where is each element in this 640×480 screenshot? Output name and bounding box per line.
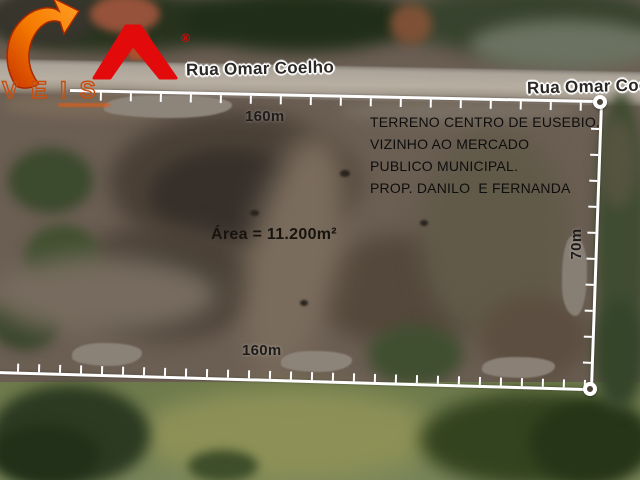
property-description: TERRENO CENTRO DE EUSEBIO. VIZINHO AO ME…	[370, 111, 600, 199]
boundary-tick	[206, 369, 208, 377]
boundary-tick	[374, 374, 376, 382]
boundary-tick	[227, 370, 229, 378]
boundary-tick	[269, 371, 271, 379]
boundary-tick	[353, 373, 355, 381]
terrain-patch	[420, 220, 428, 226]
boundary-tick	[583, 362, 591, 364]
terrain-patch	[300, 300, 308, 306]
boundary-tick	[587, 232, 595, 234]
boundary-tick	[479, 377, 481, 385]
corner-marker-top-right	[593, 95, 607, 109]
terrain-patch	[0, 382, 640, 480]
boundary-tick	[250, 95, 252, 103]
terrain-patch	[140, 390, 440, 480]
boundary-tick	[520, 101, 522, 109]
terrain-patch	[0, 295, 60, 350]
satellite-map-view: Rua Omar Coelho Rua Omar Coe 160m 160m 7…	[0, 0, 640, 480]
description-line: PUBLICO MUNICIPAL.	[370, 155, 600, 177]
terrain-patch	[470, 20, 640, 70]
description-line: TERRENO CENTRO DE EUSEBIO.	[370, 111, 600, 133]
terrain-patch	[0, 425, 100, 480]
terrain-patch	[530, 400, 640, 480]
terrain-patch	[400, 0, 640, 55]
boundary-tick	[370, 98, 372, 106]
dimension-label-top: 160m	[245, 108, 285, 125]
boundary-tick	[17, 364, 19, 372]
agency-logo: ® VEIS	[0, 0, 240, 120]
terrain-patch	[390, 4, 432, 44]
smudge-mark	[281, 351, 352, 372]
terrain-patch	[0, 385, 150, 480]
logo-wordmark: VEIS	[2, 77, 109, 105]
boundary-tick	[38, 364, 40, 372]
terrain-patch	[598, 118, 638, 208]
boundary-tick	[500, 378, 502, 386]
boundary-tick	[311, 372, 313, 380]
dimension-label-bottom: 160m	[242, 342, 282, 359]
boundary-tick	[580, 102, 582, 110]
terrain-patch	[188, 450, 258, 480]
boundary-tick	[430, 99, 432, 107]
boundary-tick	[290, 371, 292, 379]
street-label-right: Rua Omar Coe	[527, 75, 640, 98]
terrain-patch	[596, 92, 640, 392]
boundary-tick	[490, 100, 492, 108]
boundary-tick	[280, 96, 282, 104]
terrain-patch	[25, 225, 100, 290]
boundary-tick	[437, 376, 439, 384]
logo-registered-icon: ®	[181, 31, 190, 45]
boundary-tick	[332, 373, 334, 381]
smudge-mark	[482, 357, 555, 378]
boundary-tick	[585, 310, 593, 312]
terrain-patch	[100, 255, 220, 325]
boundary-tick	[340, 97, 342, 105]
terrain-patch	[340, 170, 350, 177]
logo-subtext-bar	[58, 103, 110, 107]
boundary-tick	[542, 379, 544, 387]
boundary-tick	[122, 367, 124, 375]
corner-marker-bottom-right	[583, 382, 597, 396]
boundary-tick	[460, 100, 462, 108]
boundary-tick	[143, 367, 145, 375]
boundary-tick	[458, 376, 460, 384]
boundary-tick	[416, 375, 418, 383]
boundary-tick	[400, 99, 402, 107]
boundary-tick	[563, 379, 565, 387]
boundary-tick	[80, 365, 82, 373]
terrain-patch	[310, 235, 500, 345]
description-line: PROP. DANILO E FERNANDA	[370, 177, 600, 199]
terrain-patch	[594, 300, 640, 410]
terrain-patch	[8, 148, 93, 213]
boundary-tick	[164, 368, 166, 376]
terrain-patch	[420, 392, 640, 480]
boundary-tick	[185, 368, 187, 376]
boundary-tick	[59, 365, 61, 373]
boundary-tick	[584, 336, 592, 338]
terrain-patch	[250, 210, 259, 216]
terrain-patch	[0, 255, 220, 335]
boundary-tick	[588, 206, 596, 208]
logo-arrow-swoosh	[7, 0, 79, 88]
dimension-label-right: 70m	[568, 222, 588, 266]
area-label: Área = 11.200m²	[211, 226, 337, 244]
boundary-tick	[101, 366, 103, 374]
boundary-tick	[395, 374, 397, 382]
boundary-tick	[248, 370, 250, 378]
boundary-tick	[550, 102, 552, 110]
boundary-tick	[521, 378, 523, 386]
boundary-tick	[586, 284, 594, 286]
logo-a-mark	[94, 26, 176, 78]
boundary-tick	[310, 97, 312, 105]
description-line: VIZINHO AO MERCADO	[370, 133, 600, 155]
smudge-mark	[72, 343, 142, 366]
